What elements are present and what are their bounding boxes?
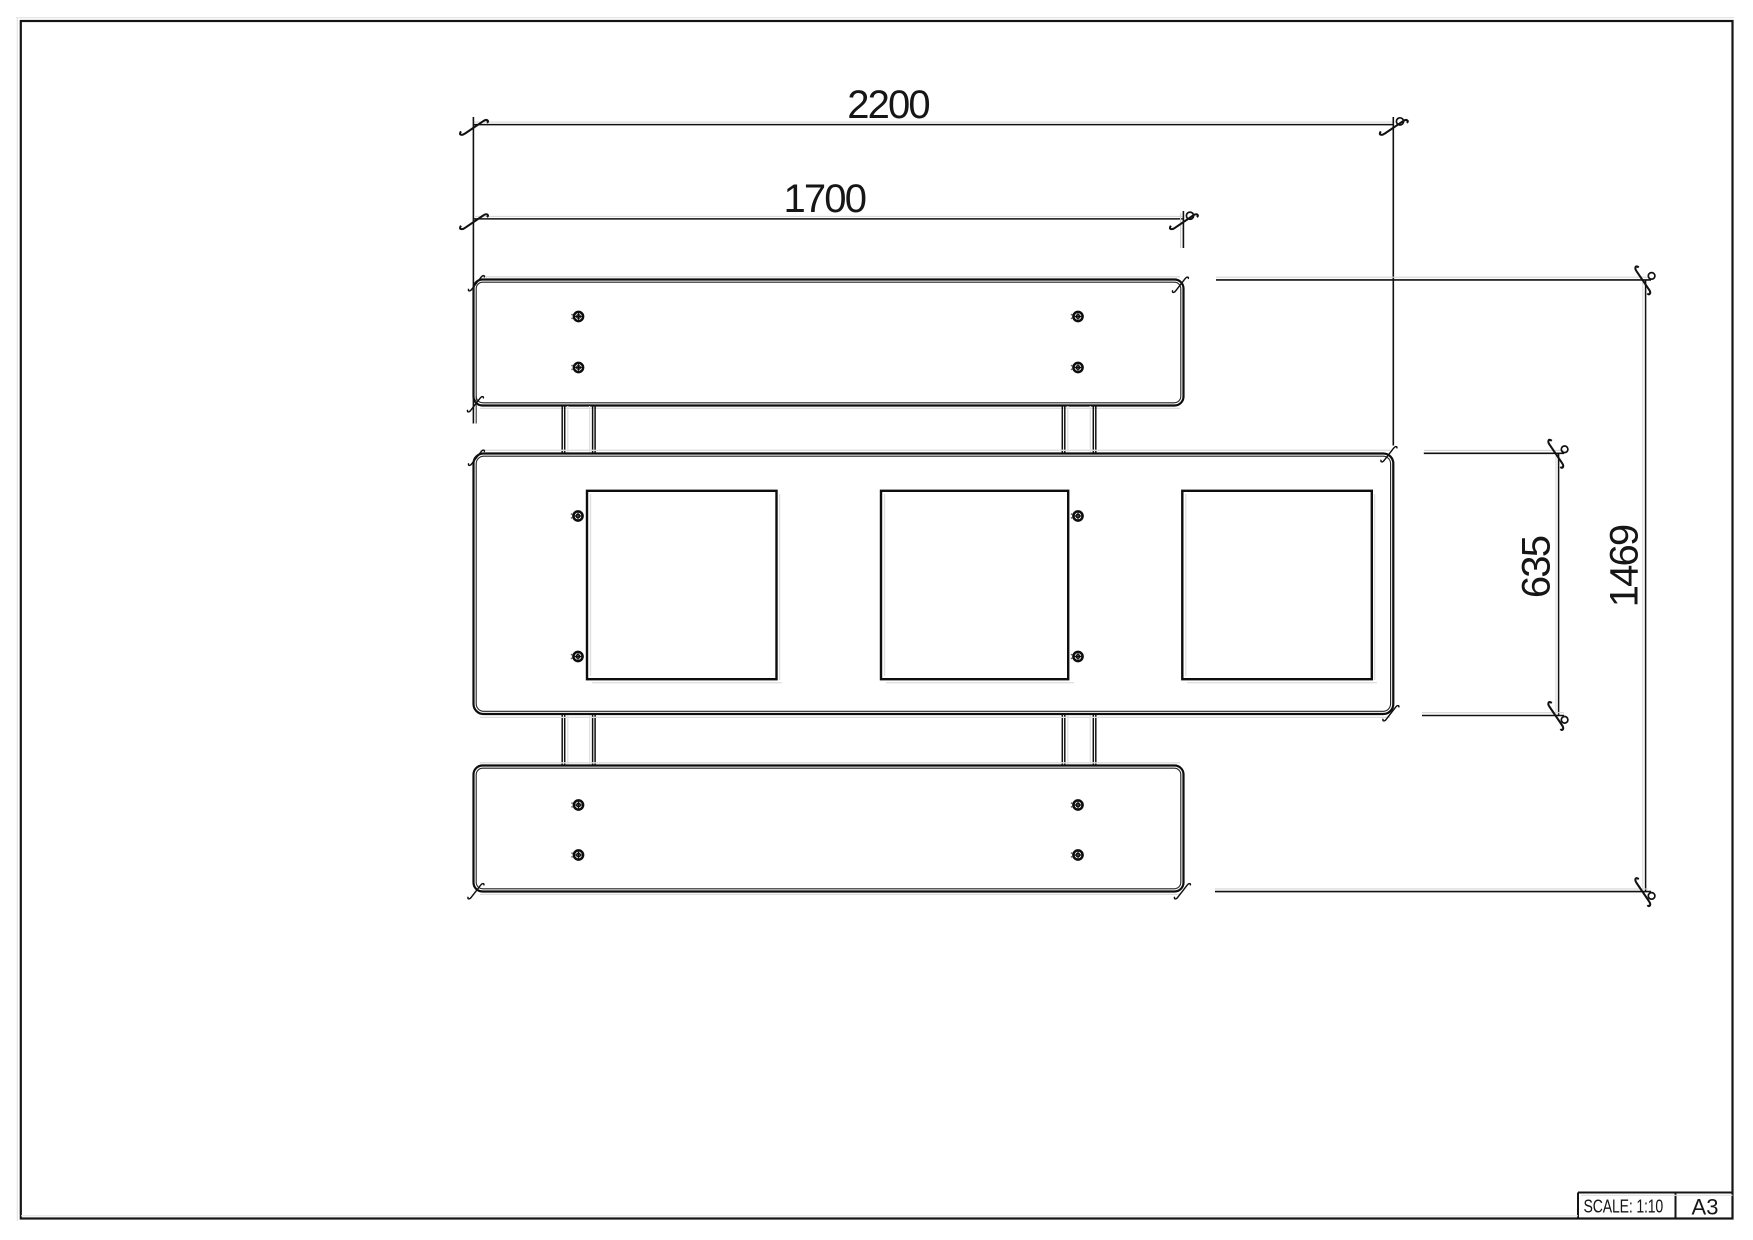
svg-text:2200: 2200 — [847, 83, 929, 127]
svg-text:1700: 1700 — [784, 177, 866, 221]
svg-text:SCALE: 1:10: SCALE: 1:10 — [1584, 1197, 1664, 1217]
svg-text:1469: 1469 — [1603, 525, 1647, 607]
svg-text:635: 635 — [1515, 536, 1559, 598]
svg-text:A3: A3 — [1692, 1195, 1719, 1220]
